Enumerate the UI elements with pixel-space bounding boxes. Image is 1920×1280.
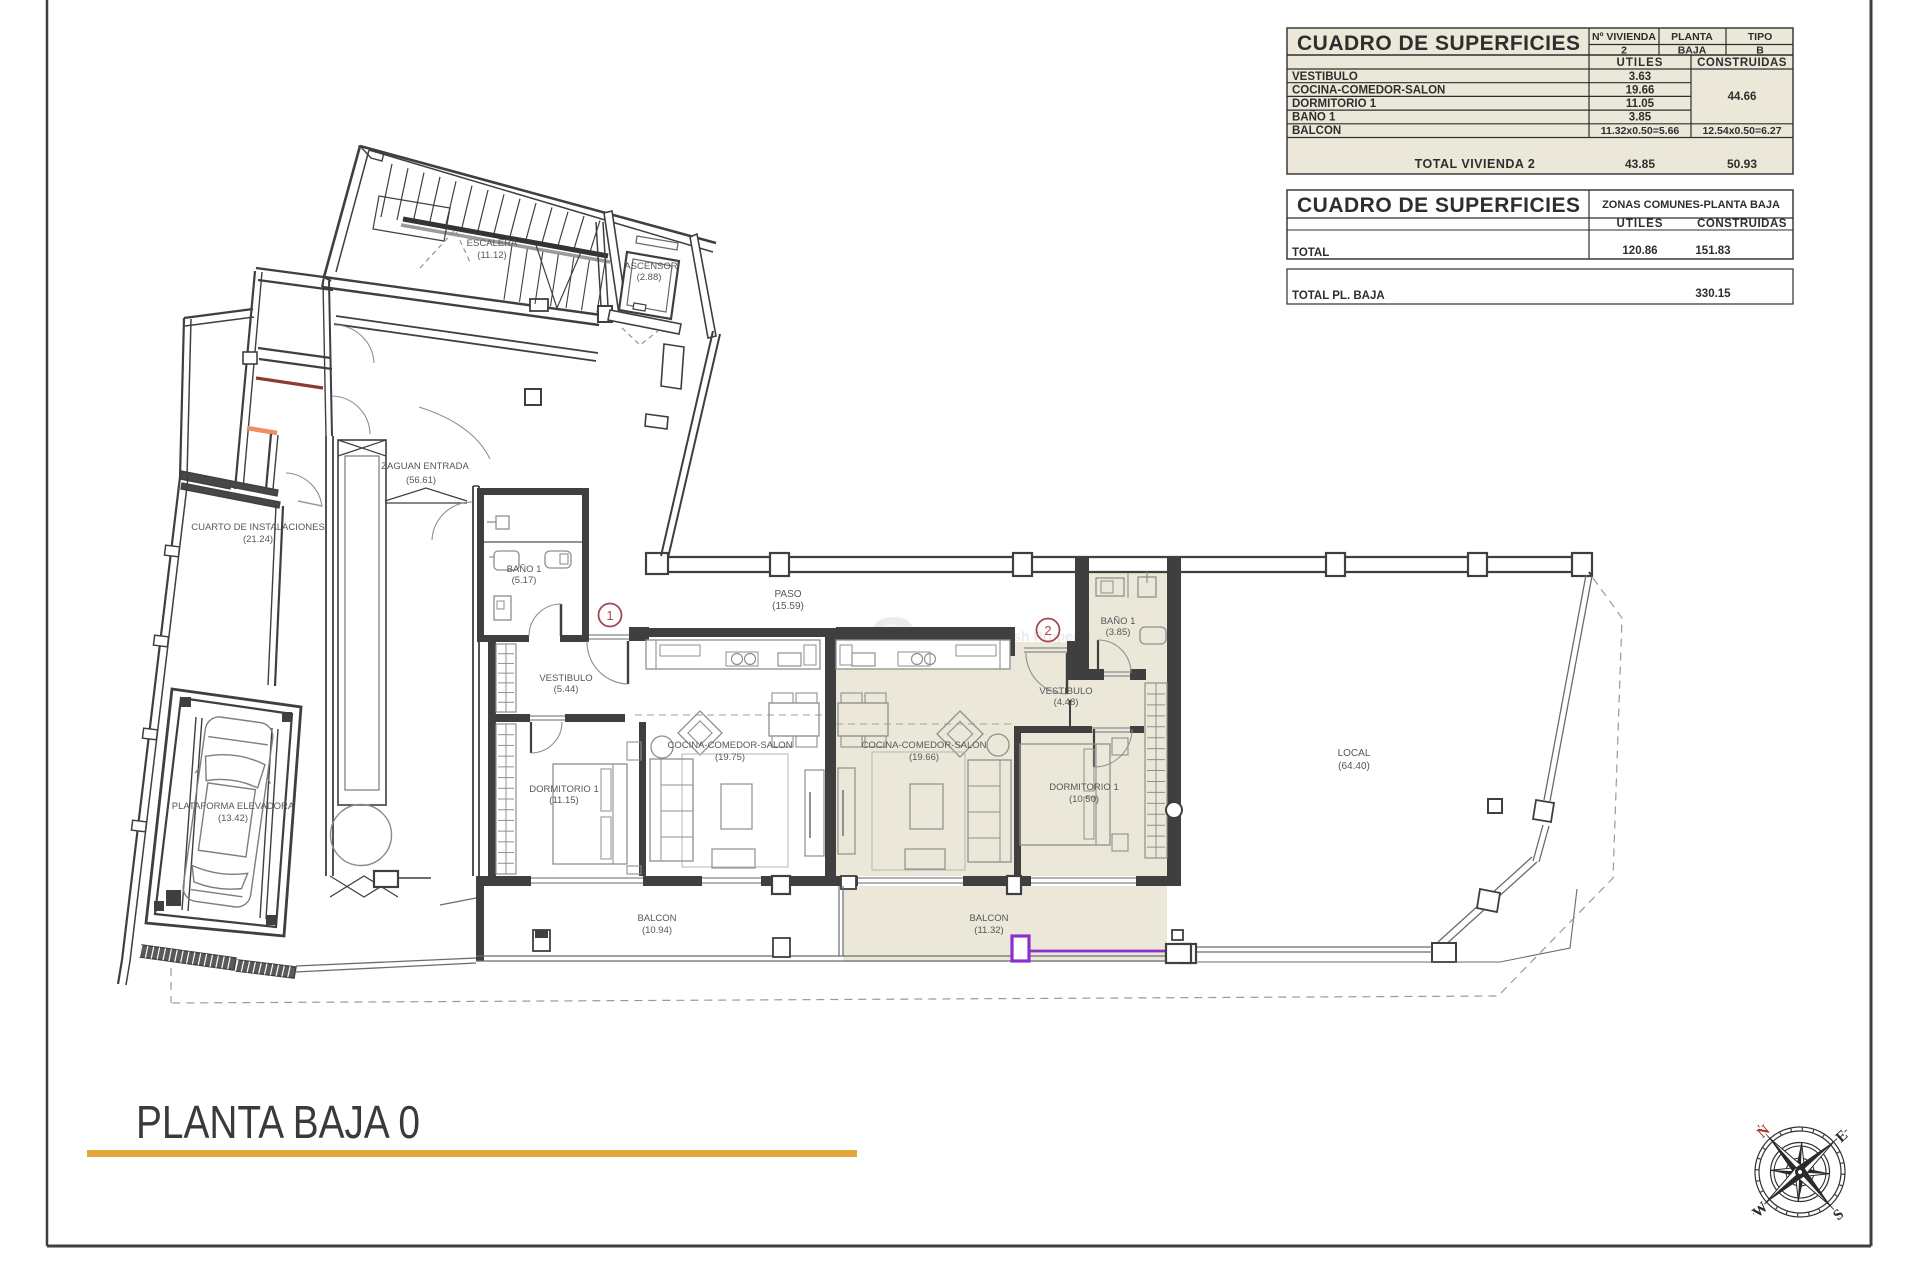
svg-text:Nº VIVIENDA: Nº VIVIENDA: [1592, 31, 1656, 43]
svg-text:120.86: 120.86: [1622, 245, 1657, 257]
svg-text:19.66: 19.66: [1626, 85, 1655, 97]
svg-text:(10.94): (10.94): [642, 925, 672, 936]
svg-text:(11.12): (11.12): [477, 250, 506, 261]
svg-text:COCINA-COMEDOR-SALON: COCINA-COMEDOR-SALON: [861, 740, 986, 751]
svg-text:ESCALERA: ESCALERA: [467, 238, 518, 249]
svg-text:2: 2: [1621, 45, 1627, 57]
svg-text:BAÑO 1: BAÑO 1: [1101, 616, 1136, 627]
svg-text:LOCAL: LOCAL: [1338, 748, 1371, 759]
svg-text:DORMITORIO 1: DORMITORIO 1: [529, 784, 599, 795]
svg-text:3.63: 3.63: [1629, 71, 1651, 83]
svg-text:PASO: PASO: [774, 589, 801, 600]
svg-text:11.05: 11.05: [1626, 98, 1655, 110]
svg-text:(19.75): (19.75): [715, 752, 745, 763]
svg-text:(64.40): (64.40): [1338, 761, 1370, 772]
svg-text:UTILES: UTILES: [1617, 218, 1664, 230]
svg-text:BALCON: BALCON: [637, 913, 676, 924]
svg-text:BAÑO 1: BAÑO 1: [507, 564, 542, 575]
svg-text:BAJA: BAJA: [1678, 45, 1707, 57]
svg-text:2: 2: [1044, 623, 1051, 638]
svg-text:PLATAFORMA ELEVADORA: PLATAFORMA ELEVADORA: [172, 801, 295, 812]
svg-text:3.85: 3.85: [1629, 112, 1652, 124]
svg-text:(2.88): (2.88): [637, 272, 662, 283]
svg-text:CONSTRUIDAS: CONSTRUIDAS: [1697, 218, 1787, 230]
svg-text:TIPO: TIPO: [1748, 31, 1773, 43]
svg-text:BALCON: BALCON: [1292, 125, 1341, 137]
svg-text:330.15: 330.15: [1695, 288, 1731, 300]
svg-text:ASCENSOR: ASCENSOR: [624, 261, 677, 272]
svg-text:151.83: 151.83: [1695, 245, 1730, 257]
svg-text:TOTAL: TOTAL: [1292, 247, 1329, 259]
svg-text:11.32x0.50=5.66: 11.32x0.50=5.66: [1601, 125, 1680, 137]
svg-text:CUADRO DE SUPERFICIES: CUADRO DE SUPERFICIES: [1297, 32, 1581, 55]
svg-text:CONSTRUIDAS: CONSTRUIDAS: [1697, 57, 1787, 69]
svg-text:B: B: [1756, 45, 1764, 57]
svg-text:COCINA-COMEDOR-SALON: COCINA-COMEDOR-SALON: [1292, 85, 1445, 97]
svg-text:(56.61): (56.61): [406, 475, 436, 486]
svg-text:CUARTO DE INSTALACIONES: CUARTO DE INSTALACIONES: [191, 522, 325, 533]
svg-text:50.93: 50.93: [1727, 157, 1757, 171]
svg-text:VESTIBULO: VESTIBULO: [1292, 71, 1358, 83]
svg-text:VESTIBULO: VESTIBULO: [1039, 686, 1092, 697]
svg-text:(11.32): (11.32): [974, 925, 1003, 936]
svg-text:(3.85): (3.85): [1106, 627, 1131, 638]
svg-text:1: 1: [606, 608, 613, 623]
svg-text:12.54x0.50=6.27: 12.54x0.50=6.27: [1702, 125, 1781, 137]
svg-text:(5.17): (5.17): [512, 575, 537, 586]
svg-text:(11.15): (11.15): [549, 795, 578, 806]
svg-text:PLANTA BAJA 0: PLANTA BAJA 0: [136, 1096, 420, 1148]
svg-text:44.66: 44.66: [1728, 91, 1757, 103]
svg-text:(4.48): (4.48): [1054, 697, 1079, 708]
svg-text:CUADRO DE SUPERFICIES: CUADRO DE SUPERFICIES: [1297, 194, 1581, 217]
svg-text:DORMITORIO 1: DORMITORIO 1: [1292, 98, 1377, 110]
svg-text:(13.42): (13.42): [218, 813, 248, 824]
svg-text:(21.24): (21.24): [243, 534, 273, 545]
svg-text:ZONAS COMUNES-PLANTA BAJA: ZONAS COMUNES-PLANTA BAJA: [1602, 199, 1780, 211]
svg-text:(15.59): (15.59): [772, 601, 804, 612]
svg-text:BAÑO 1: BAÑO 1: [1292, 111, 1336, 124]
svg-text:UTILES: UTILES: [1617, 57, 1664, 69]
svg-text:VESTIBULO: VESTIBULO: [539, 673, 592, 684]
svg-text:ZAGUAN ENTRADA: ZAGUAN ENTRADA: [381, 461, 469, 472]
svg-text:(19.66): (19.66): [909, 752, 939, 763]
svg-text:DORMITORIO 1: DORMITORIO 1: [1049, 782, 1119, 793]
svg-text:43.85: 43.85: [1625, 157, 1655, 171]
svg-text:(10.50): (10.50): [1069, 794, 1099, 805]
svg-text:(5.44): (5.44): [554, 684, 579, 695]
svg-text:PLANTA: PLANTA: [1671, 31, 1713, 43]
svg-text:COCINA-COMEDOR-SALON: COCINA-COMEDOR-SALON: [667, 740, 792, 751]
svg-text:BALCON: BALCON: [969, 913, 1008, 924]
svg-text:TOTAL VIVIENDA 2: TOTAL VIVIENDA 2: [1415, 157, 1536, 171]
svg-text:TOTAL PL. BAJA: TOTAL PL. BAJA: [1292, 290, 1385, 302]
